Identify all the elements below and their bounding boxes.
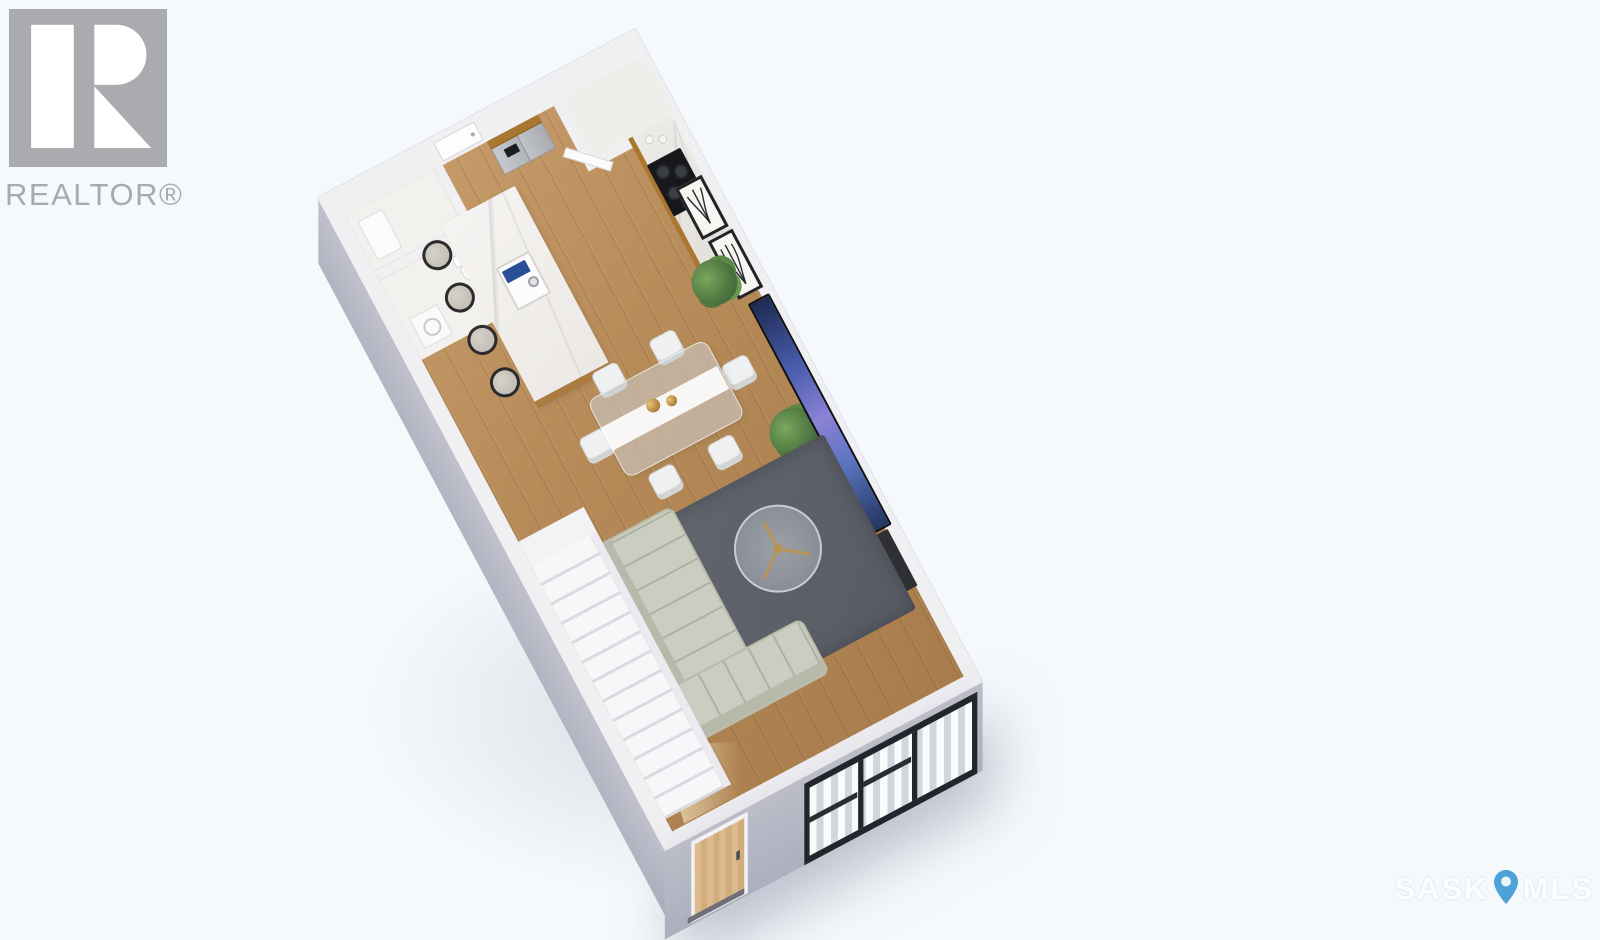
sink-bowl-icon: [420, 315, 444, 339]
watermark-sask-text: SASK: [1394, 871, 1488, 907]
watermark-mls-text: MLS: [1523, 871, 1594, 907]
sask-mls-watermark: SASK MLS: [1394, 870, 1594, 908]
fridge-display-panel: [504, 143, 521, 158]
realtor-branding: REALTOR®: [9, 9, 183, 213]
real-estate-render-page: { "branding": { "realtor_label": "REALTO…: [0, 0, 1600, 899]
window-transom-bar: [863, 756, 911, 787]
window-transom-bar: [810, 792, 858, 823]
realtor-wordmark: REALTOR®: [5, 177, 183, 213]
door-handle-icon: [736, 850, 740, 861]
door-handle-icon: [470, 132, 475, 137]
floorplan-scene: [0, 0, 1600, 899]
window-mullion: [858, 759, 863, 830]
window-mullion: [912, 731, 917, 802]
realtor-block-r-logo-icon: [9, 9, 167, 167]
